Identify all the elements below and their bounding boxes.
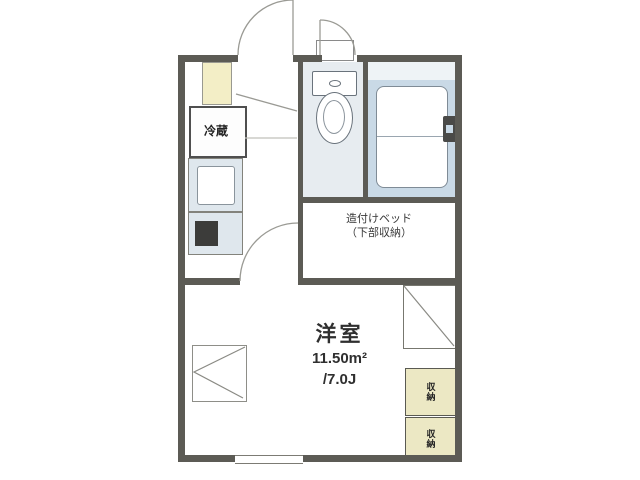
small-door-arc xyxy=(320,20,355,55)
entrance-door-arc xyxy=(238,0,293,55)
built-in-bed-note-line1: 造付けベッド xyxy=(303,212,455,226)
built-in-bed-note-line2: （下部収納） xyxy=(303,226,455,240)
folding-table-diagonals xyxy=(194,347,245,398)
room-area-m2: 11.50m² xyxy=(267,348,412,369)
floorplan-linework xyxy=(0,0,640,480)
floor-plan-image: 冷蔵 収納 収納 xyxy=(0,0,640,480)
toilet-door-leaf xyxy=(236,94,297,111)
room-label: 洋室 11.50m² /7.0J xyxy=(267,322,412,390)
room-door-arc xyxy=(240,223,298,281)
room-name: 洋室 xyxy=(267,322,412,348)
built-in-bed-note: 造付けベッド （下部収納） xyxy=(303,212,455,240)
room-area-tatami: /7.0J xyxy=(267,369,412,390)
